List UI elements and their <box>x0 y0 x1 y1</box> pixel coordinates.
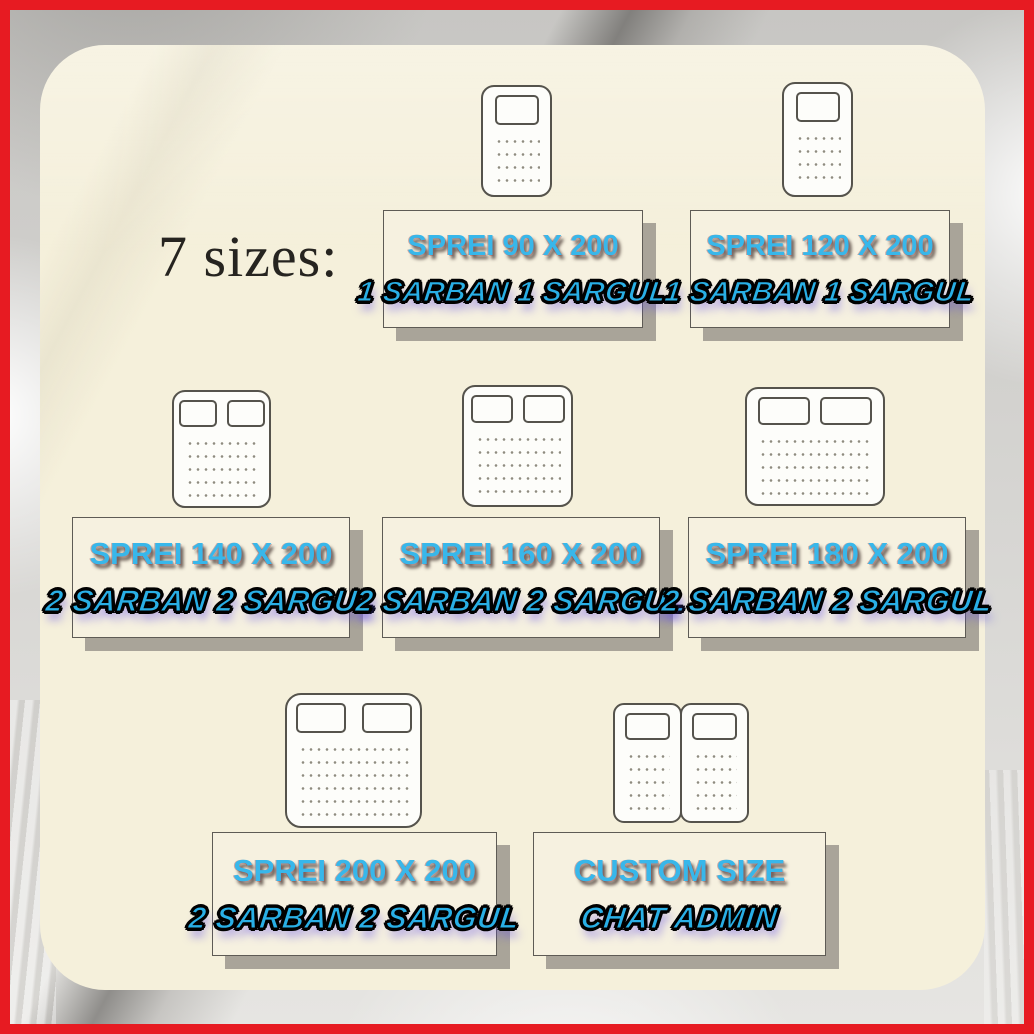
size-label: SPREI 90 X 200 <box>407 230 618 263</box>
size-label: SPREI 120 X 200 <box>706 230 933 263</box>
mattress-dots <box>184 433 259 497</box>
size-card-180x200: SPREI 180 X 200 2 SARBAN 2 SARGUL <box>688 517 966 638</box>
mattress-dots <box>297 739 410 817</box>
pillow-icons <box>747 397 883 425</box>
qty-label: 2 SARBAN 2 SARGUL <box>660 585 995 619</box>
pillow-icon <box>784 92 851 122</box>
qty-label: 1 SARBAN 1 SARGUL <box>663 276 976 308</box>
size-label: CUSTOM SIZE <box>574 853 785 889</box>
fabric-stripes-right <box>984 770 1024 1024</box>
size-label: SPREI 160 X 200 <box>400 536 643 572</box>
qty-label: 1 SARBAN 1 SARGUL <box>356 276 669 308</box>
size-card-120x200: SPREI 120 X 200 1 SARBAN 1 SARGUL <box>690 210 950 328</box>
size-label: SPREI 180 X 200 <box>706 536 949 572</box>
panel-title: 7 sizes: <box>158 223 338 290</box>
size-label: SPREI 140 X 200 <box>90 536 333 572</box>
size-label: SPREI 200 X 200 <box>233 853 476 889</box>
mattress-dots <box>692 746 737 812</box>
bed-icon-140x200 <box>172 390 271 508</box>
mattress-dots <box>757 431 873 495</box>
pillow-icons <box>464 395 571 423</box>
bed-icon-200x200 <box>285 693 422 828</box>
mattress-dots <box>474 429 561 496</box>
product-infographic: 7 sizes: <box>0 0 1034 1034</box>
size-card-90x200: SPREI 90 X 200 1 SARBAN 1 SARGUL <box>383 210 643 328</box>
pillow-icon <box>682 713 747 740</box>
qty-label: CHAT ADMIN <box>579 902 780 936</box>
mattress-dots <box>493 131 540 186</box>
pillow-icon <box>483 95 550 125</box>
mattress-dots <box>625 746 670 812</box>
pillow-icon <box>615 713 680 740</box>
size-card-160x200: SPREI 160 X 200 2 SARBAN 2 SARGUL <box>382 517 660 638</box>
size-card-140x200: SPREI 140 X 200 2 SARBAN 2 SARGUL <box>72 517 350 638</box>
size-card-custom: CUSTOM SIZE CHAT ADMIN <box>533 832 826 956</box>
bed-icon-custom-twin <box>613 703 749 823</box>
bed-icon-90x200 <box>481 85 552 197</box>
bed-icon-160x200 <box>462 385 573 507</box>
bed-icon-180x200 <box>745 387 885 506</box>
qty-label: 2 SARBAN 2 SARGUL <box>187 902 522 936</box>
qty-label: 2 SARBAN 2 SARGUL <box>354 585 689 619</box>
qty-label: 2 SARBAN 2 SARGUL <box>44 585 379 619</box>
bed-icon-120x200 <box>782 82 853 197</box>
size-card-200x200: SPREI 200 X 200 2 SARBAN 2 SARGUL <box>212 832 497 956</box>
mattress-dots <box>794 128 841 186</box>
pillow-icons <box>174 400 269 427</box>
pillow-icons <box>287 703 420 733</box>
